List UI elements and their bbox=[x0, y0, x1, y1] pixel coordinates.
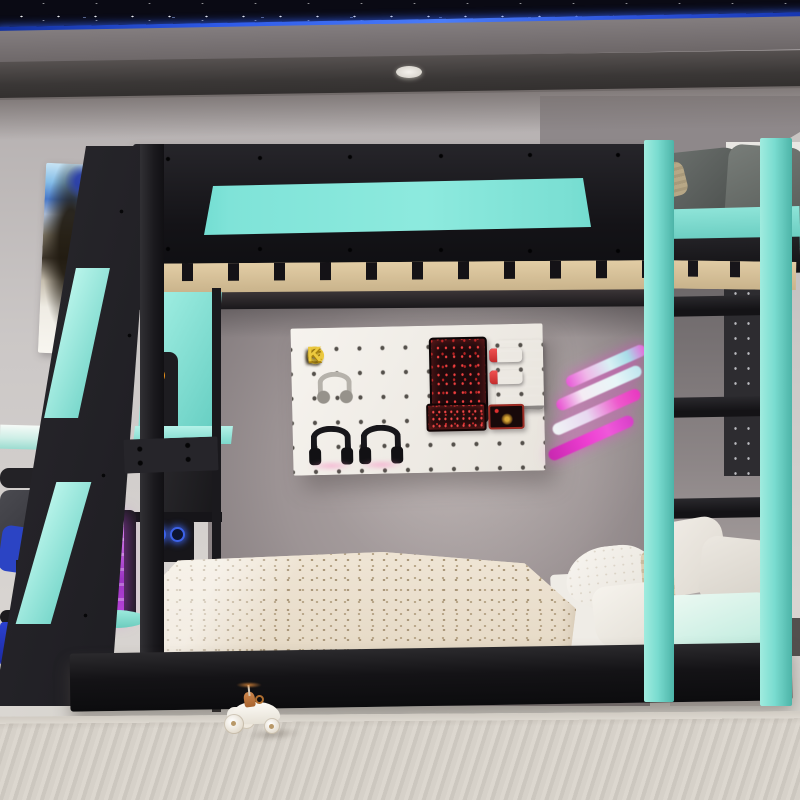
bed-front-left-post bbox=[140, 144, 164, 706]
toy-wheel-hub bbox=[269, 724, 274, 729]
lower-bed-black-base bbox=[70, 642, 793, 711]
teal-ladder-rail-right bbox=[760, 138, 792, 706]
striped-rug bbox=[0, 711, 800, 800]
toy-propeller bbox=[236, 682, 262, 688]
toy-wheel-hub bbox=[231, 721, 236, 726]
ladder-connector-bracket bbox=[123, 436, 218, 473]
bedroom-product-photo: R ★ C K bbox=[0, 0, 800, 800]
toy-race-car bbox=[220, 682, 300, 746]
teal-ladder-rail-left bbox=[644, 140, 674, 702]
